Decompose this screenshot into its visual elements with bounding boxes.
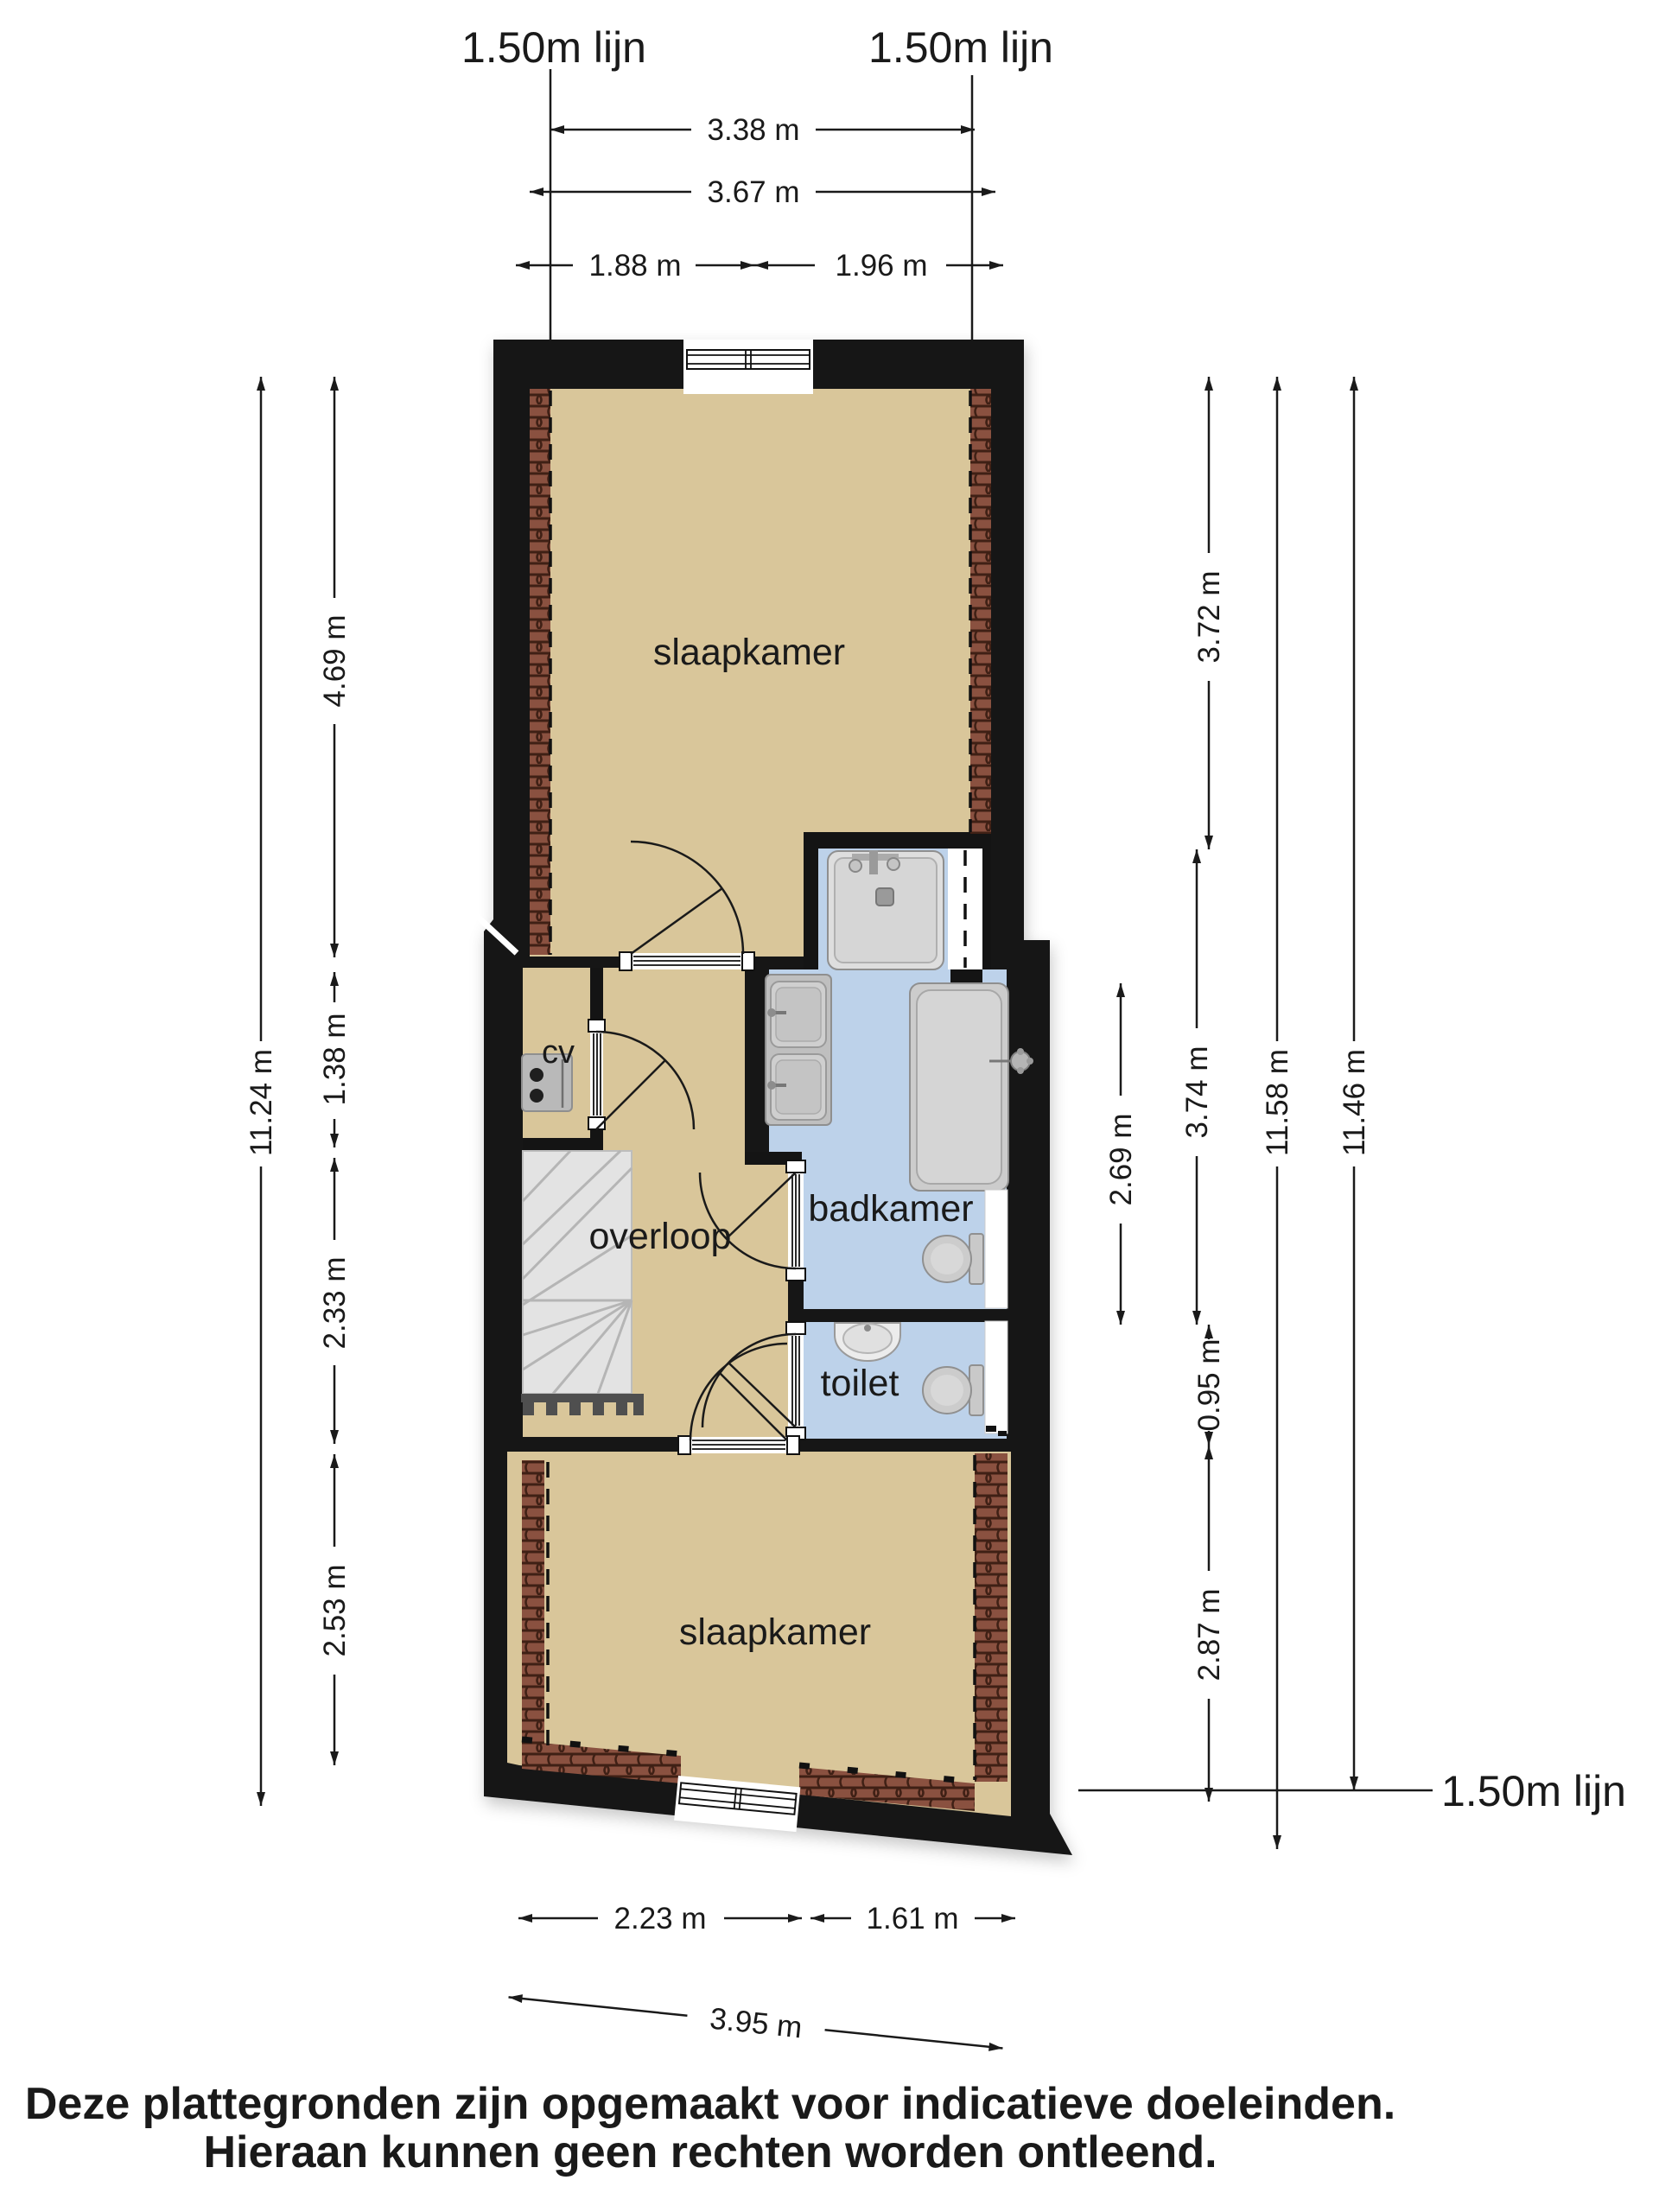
floorplan-canvas: slaapkamer overloop badkamer toilet cv s… <box>0 0 1659 2212</box>
roofline-dash-tick <box>986 1426 996 1432</box>
dim-right-095: 0.95 m <box>1192 1339 1226 1432</box>
building: slaapkamer overloop badkamer toilet cv s… <box>471 340 1072 1855</box>
dim-right-287: 2.87 m <box>1192 1589 1226 1681</box>
dim-left-233: 2.33 m <box>318 1257 352 1350</box>
dim-right-372: 3.72 m <box>1192 571 1226 664</box>
dim-bottom-395: 3.95 m <box>709 2002 804 2045</box>
disclaimer-line-1: Deze plattegronden zijn opgemaakt voor i… <box>25 2079 1395 2129</box>
shower-icon <box>828 850 944 969</box>
roofline-strip-east-2 <box>985 1321 1007 1433</box>
room-label-cv: cv <box>542 1034 575 1071</box>
room-label-bedroom-bottom: slaapkamer <box>679 1611 871 1653</box>
dim-top-188: 1.88 m <box>589 249 682 283</box>
roofline-dash-tick <box>998 1431 1007 1436</box>
dim-bottom-223: 2.23 m <box>614 1902 707 1935</box>
dim-left-138: 1.38 m <box>318 1014 352 1106</box>
dim-right-374: 3.74 m <box>1180 1046 1214 1139</box>
double-washbasin-icon <box>766 975 831 1125</box>
height-line-label-top-left: 1.50m lijn <box>461 23 646 72</box>
room-label-landing: overloop <box>589 1216 732 1257</box>
room-label-toilet: toilet <box>821 1363 899 1404</box>
dim-right-total-a: 11.58 m <box>1261 1049 1294 1156</box>
wall-stub-alcove-bottom <box>950 969 982 983</box>
dim-bottom-161: 1.61 m <box>867 1902 959 1935</box>
dim-top-338: 3.38 m <box>708 113 800 147</box>
window-icon <box>683 340 813 394</box>
dim-left-469: 4.69 m <box>318 615 352 708</box>
wc-icon <box>923 1365 983 1415</box>
dim-left-total: 11.24 m <box>245 1049 278 1156</box>
stairs-icon <box>521 1151 644 1415</box>
dim-top-196: 1.96 m <box>836 249 928 283</box>
dim-left-253: 2.53 m <box>318 1565 352 1657</box>
wall-cv-bottom <box>523 1138 603 1150</box>
disclaimer-line-2: Hieraan kunnen geen rechten worden ontle… <box>203 2127 1217 2177</box>
dim-right-total-b: 11.46 m <box>1338 1049 1371 1156</box>
room-label-bathroom: badkamer <box>808 1188 973 1230</box>
roofline-strip-east-1 <box>985 1190 1007 1308</box>
dim-top-367: 3.67 m <box>708 175 800 209</box>
wall-cv-right <box>590 968 603 1021</box>
height-line-label-bottom-right: 1.50m lijn <box>1441 1767 1626 1815</box>
room-label-bedroom-top: slaapkamer <box>653 632 845 673</box>
wc-icon <box>923 1234 983 1284</box>
dim-right-269: 2.69 m <box>1104 1114 1138 1206</box>
height-line-label-top-right: 1.50m lijn <box>868 23 1053 72</box>
